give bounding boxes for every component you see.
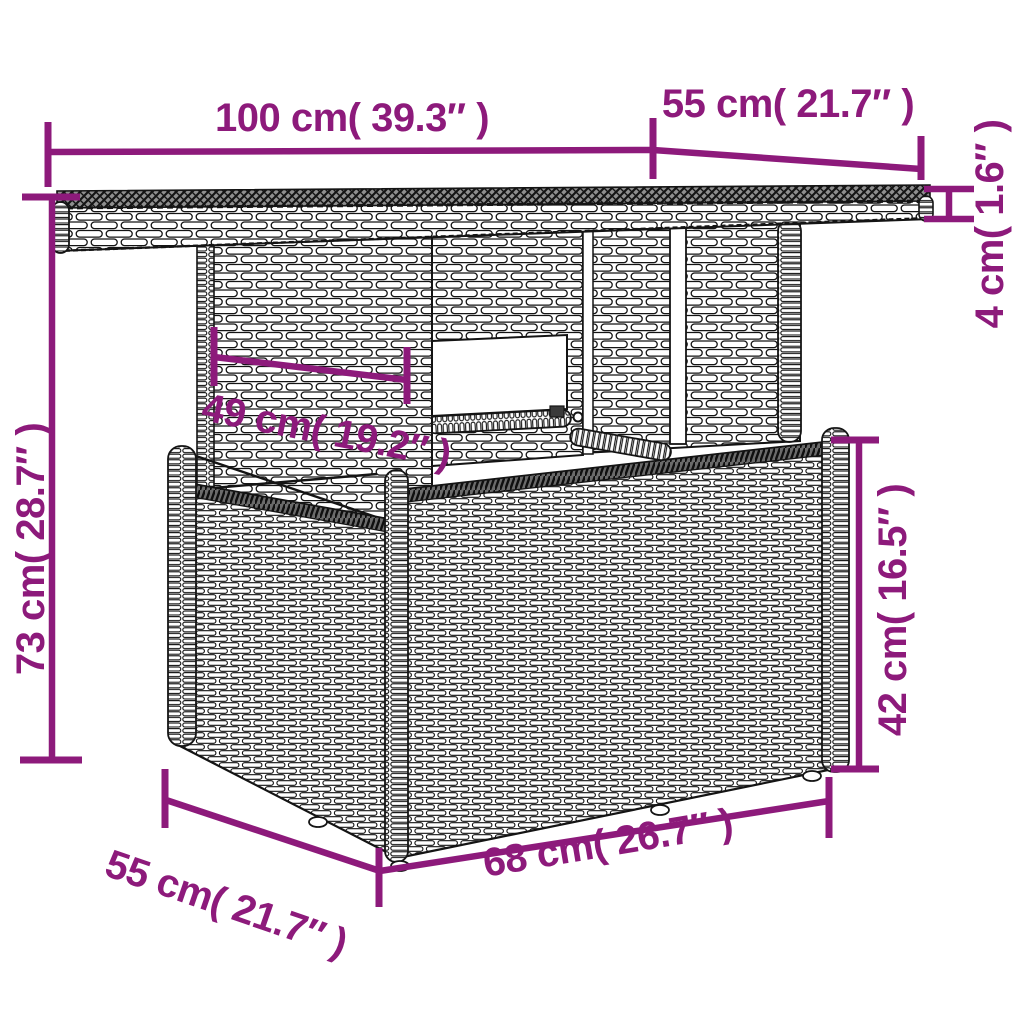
table-illustration <box>52 185 933 871</box>
foot <box>803 771 821 781</box>
dimension-top-width: 100 cm( 39.3″ ) <box>48 96 653 187</box>
dim-label-top-depth: 55 cm( 21.7″ ) <box>662 82 914 126</box>
dimension-top-depth: 55 cm( 21.7″ ) <box>653 82 921 180</box>
dimension-total-height: 73 cm( 28.7″ ) <box>9 197 82 760</box>
base-right-face <box>398 440 843 858</box>
back-panel-window <box>432 335 567 416</box>
dimension-diagram: 100 cm( 39.3″ ) 55 cm( 21.7″ ) 4 cm( 1.6… <box>0 0 1024 1024</box>
base-left-corner-post <box>168 446 196 746</box>
right-pedestal-face <box>583 222 800 453</box>
back-panel <box>427 228 583 466</box>
dim-label-top-thickness: 4 cm( 1.6″ ) <box>968 120 1012 329</box>
right-pedestal-white-post <box>670 226 686 444</box>
dim-label-top-width: 100 cm( 39.3″ ) <box>215 96 489 140</box>
bracket-fitting <box>550 406 564 417</box>
diagram-canvas: 100 cm( 39.3″ ) 55 cm( 21.7″ ) 4 cm( 1.6… <box>0 0 1024 1024</box>
dim-label-total-height: 73 cm( 28.7″ ) <box>9 423 53 675</box>
right-pedestal-corner-post <box>778 220 801 442</box>
dimension-top-thickness: 4 cm( 1.6″ ) <box>924 120 1012 329</box>
dim-line-top-width <box>48 150 653 152</box>
right-pedestal-left-post <box>583 228 593 454</box>
base-right-corner-post <box>822 428 849 772</box>
foot <box>309 817 327 827</box>
bolt-head <box>574 413 583 422</box>
dim-line-top-depth <box>653 150 921 169</box>
base-front-corner-post <box>385 470 408 862</box>
base-left-face <box>176 481 398 858</box>
dim-label-base-depth: 55 cm( 21.7″ ) <box>100 842 353 966</box>
right-pedestal <box>569 220 801 462</box>
dim-label-base-height: 42 cm( 16.5″ ) <box>871 484 915 736</box>
